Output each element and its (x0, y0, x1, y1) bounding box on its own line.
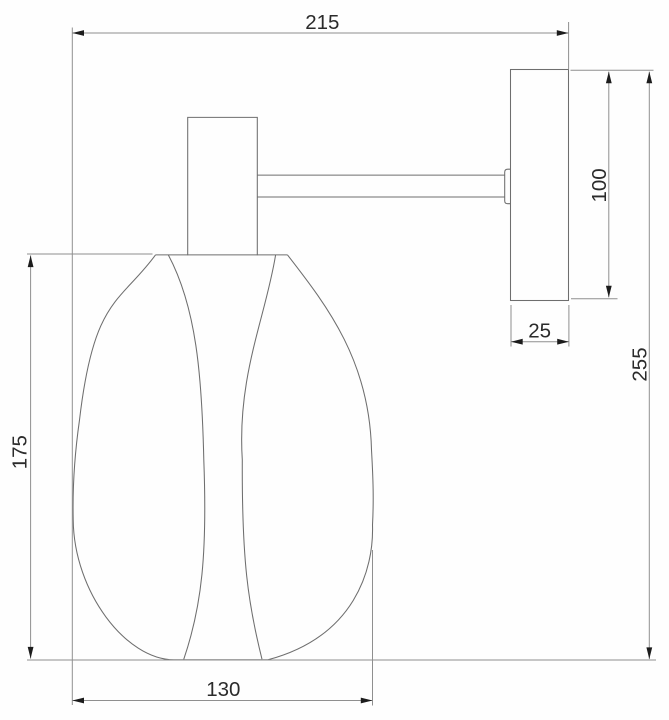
svg-text:100: 100 (588, 168, 611, 202)
svg-text:130: 130 (206, 678, 240, 701)
svg-text:255: 255 (628, 347, 651, 381)
svg-text:25: 25 (528, 320, 551, 343)
svg-text:175: 175 (8, 435, 31, 469)
svg-text:215: 215 (305, 11, 339, 34)
